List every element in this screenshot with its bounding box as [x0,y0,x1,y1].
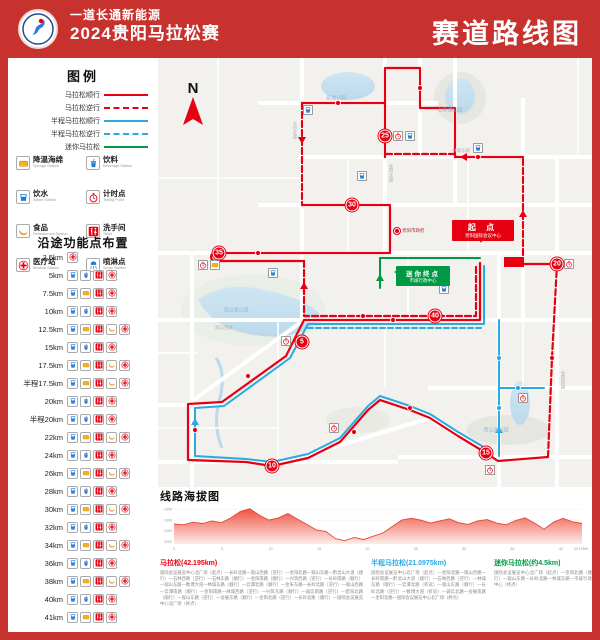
elevation-title: 线路海拔图 [160,488,592,504]
water-icon [67,414,78,425]
half-marathon-description-title: 半程马拉松(21.0975km) [371,558,486,568]
waypoint-row: 20km [8,392,158,410]
start-point-label: 起 点 贵阳国际会议中心 [452,220,514,241]
beverage-icon [80,306,91,317]
waypoint-row: 36km [8,554,158,572]
waypoint-row: 15km [8,338,158,356]
legend-route-label: 半程马拉松顺行 [51,116,100,126]
lake-label: 七彩湖公园 [437,107,462,114]
toilet-icon [93,558,104,569]
waypoint-row: 2.5km [8,248,158,266]
water-icon [67,306,78,317]
toilet-icon [93,396,104,407]
mini-finish-line1: 迷你终点 [397,268,449,278]
map-sponge-icon [210,260,220,270]
svg-text:15: 15 [317,547,321,551]
legend-route-line-sample [104,146,148,148]
svg-text:1350: 1350 [164,508,172,512]
svg-text:42.195KM: 42.195KM [574,547,588,551]
waypoint-icons [67,342,117,353]
medical-icon [119,324,130,335]
beverage-icon [80,450,91,461]
facility-name-zh: 饮水 [33,190,56,198]
waypoint-km-label: 30km [8,505,63,514]
finish-gate-marker [504,257,524,267]
compass-label: N [180,80,206,97]
medical-icon [106,396,117,407]
route-map: N 起 点 贵阳国际会议中心 迷你终点 市级行政中心 贵阳市政府 5101520… [158,58,592,487]
city-government-poi: 贵阳市政府 [394,228,425,234]
marathon-description-title: 马拉松(42.195km) [160,558,363,568]
food-icon [106,324,117,335]
half-marathon-description: 半程马拉松(21.0975km) 国际会议展览中心北广场（起点）—金阳北路—观山… [371,558,486,630]
map-water-icon [405,131,415,141]
water-icon [67,558,78,569]
toilet-icon [93,594,104,605]
waypoint-icons [67,378,130,389]
toilet-icon [93,288,104,299]
start-label-line2: 贵阳国际会议中心 [453,233,513,239]
event-logo [18,9,58,49]
poi-label: 贵阳市政府 [402,228,425,234]
food-icon [106,540,117,551]
sponsor-line: 一道长通新能源 [70,8,220,23]
legend-route-item: 马拉松逆行 [8,101,158,114]
waypoint-km-label: 36km [8,559,63,568]
svg-text:1200: 1200 [164,540,172,544]
toilet-icon [93,522,104,533]
legend-route-item: 马拉松顺行 [8,88,158,101]
map-water-icon [473,143,483,153]
waypoint-km-label: 26km [8,469,63,478]
waypoint-icons [67,522,117,533]
water-icon [67,504,78,515]
map-timing-icon [281,336,291,346]
waypoint-icons [67,612,117,623]
waypoint-icons [67,486,117,497]
water-icon [67,270,78,281]
legend-route-item: 半程马拉松逆行 [8,127,158,140]
legend-route-label: 马拉松顺行 [65,90,100,100]
waypoint-list: 2.5km5km7.5km10km12.5km15km17.5km半程17.5k… [8,248,158,626]
marathon-description-body: 国际会议展览中心北广场（起点）—长岭北路—观山西路（逆行）—金阳北路—观山东路—… [160,570,363,607]
sponge-icon [80,360,91,371]
map-timing-icon [393,131,403,141]
waypoint-row: 26km [8,464,158,482]
waypoint-icons [67,540,130,551]
elevation-section: 线路海拔图 1350130012501200051015202530354042… [160,488,592,558]
map-timing-icon [518,393,528,403]
medical-icon [106,414,117,425]
waypoint-icons [67,576,130,587]
waypoint-row: 17.5km [8,356,158,374]
svg-text:5: 5 [221,547,223,551]
water-icon [67,342,78,353]
km-marker-10: 10 [266,460,279,473]
map-water-icon [303,105,313,115]
route-map-canvas [158,58,592,487]
toilet-icon [93,432,104,443]
beverage-icon [80,396,91,407]
waypoint-row: 30km [8,500,158,518]
toilet-icon [93,414,104,425]
beverage-icon [80,522,91,533]
waypoint-icons [67,288,117,299]
medical-icon [106,270,117,281]
waypoint-row: 28km [8,482,158,500]
waypoint-row: 24km [8,446,158,464]
marathon-description: 马拉松(42.195km) 国际会议展览中心北广场（起点）—长岭北路—观山西路（… [160,558,363,630]
timing-icon [86,190,100,204]
north-compass-icon: N [180,80,206,130]
poster-content: 图例 马拉松顺行马拉松逆行半程马拉松顺行半程马拉松逆行迷你马拉松 降温海绵Spo… [8,58,592,632]
elevation-chart-svg: 1350130012501200051015202530354042.195KM [160,504,588,556]
waypoint-icons [67,504,130,515]
waypoint-icons [67,306,117,317]
waypoint-icons [67,468,130,479]
map-timing-icon [329,423,339,433]
waypoint-km-label: 15km [8,343,63,352]
waypoint-km-label: 22km [8,433,63,442]
route-descriptions: 马拉松(42.195km) 国际会议展览中心北广场（起点）—长岭北路—观山西路（… [160,558,592,630]
water-icon [67,468,78,479]
waypoint-row: 7.5km [8,284,158,302]
water-icon [67,522,78,533]
legend-title: 图例 [8,66,158,85]
beverage-icon [80,342,91,353]
waypoint-row: 34km [8,536,158,554]
sponge-icon [80,378,91,389]
sponge-icon [80,576,91,587]
waypoint-row: 40km [8,590,158,608]
food-icon [106,504,117,515]
medical-icon [106,288,117,299]
mini-finish-line2: 市级行政中心 [397,278,449,284]
map-timing-icon [564,259,574,269]
map-timing-icon [485,465,495,475]
waypoint-km-label: 34km [8,541,63,550]
waypoint-icons [67,270,117,281]
toilet-icon [93,342,104,353]
waypoint-km-label: 12.5km [8,325,63,334]
waypoint-icons [67,414,117,425]
toilet-icon [93,324,104,335]
event-logo-icon [22,13,54,45]
mini-marathon-description-title: 迷你马拉松(约4.5km) [494,558,592,568]
waypoint-icons [67,360,130,371]
road-label: 长岭北路 [292,121,298,139]
medical-icon [119,378,130,389]
waypoint-km-label: 28km [8,487,63,496]
water-icon [67,486,78,497]
start-label-line1: 起 点 [453,222,513,233]
legend-route-list: 马拉松顺行马拉松逆行半程马拉松顺行半程马拉松逆行迷你马拉松 [8,88,158,153]
waypoint-km-label: 10km [8,307,63,316]
water-icon [67,594,78,605]
svg-text:20: 20 [365,547,369,551]
elevation-chart: 1350130012501200051015202530354042.195KM [160,504,592,561]
poi-dot-icon [394,228,400,234]
waypoint-icons [67,594,117,605]
medical-icon [119,576,130,587]
medical-icon [106,594,117,605]
waypoint-row: 41km [8,608,158,626]
waypoint-km-label: 17.5km [8,361,63,370]
waypoint-km-label: 32km [8,523,63,532]
water-icon [67,360,78,371]
legend-facility-item: 饮料Beverage Station [86,156,156,190]
sponge-icon [80,468,91,479]
water-icon [67,612,78,623]
medical-icon [106,486,117,497]
legend-facility-item: 降温海绵Sponge Station [16,156,86,190]
water-icon [67,450,78,461]
svg-text:0: 0 [173,547,175,551]
waypoint-km-label: 38km [8,577,63,586]
mini-marathon-description: 迷你马拉松(约4.5km) 国际会议展览中心北广场（起点）—金阳北路（顺行）—观… [494,558,592,630]
waypoint-icons [67,324,130,335]
waypoint-km-label: 半程17.5km [8,378,63,389]
legend-route-line-sample [104,120,148,122]
legend-route-line-sample [104,94,148,96]
legend-facility-text: 降温海绵Sponge Station [33,156,63,168]
water-icon [67,576,78,587]
map-water-icon [268,268,278,278]
toilet-icon [93,504,104,515]
waypoint-row: 半程17.5km [8,374,158,392]
legend-route-label: 迷你马拉松 [65,142,100,152]
facility-name-zh: 降温海绵 [33,156,63,164]
water-icon [67,540,78,551]
toilet-icon [93,378,104,389]
page-title: 赛道路线图 [432,12,582,51]
svg-text:1300: 1300 [164,518,172,522]
km-marker-25: 25 [379,130,392,143]
water-icon [16,190,30,204]
legend-facility-text: 饮料Beverage Station [103,156,132,168]
waypoint-row: 10km [8,302,158,320]
sponge-icon [80,432,91,443]
waypoint-km-label: 20km [8,397,63,406]
sponge-icon [80,504,91,515]
poster-header: 一道长通新能源 2024贵阳马拉松赛 赛道路线图 [8,0,592,58]
facility-name-zh: 计时点 [103,190,126,198]
legend-facility-text: 计时点Timing Point [103,190,126,202]
legend-facility-text: 饮水Water Station [33,190,56,202]
legend-route-label: 半程马拉松逆行 [51,129,100,139]
sponge-icon [80,288,91,299]
waypoint-row: 半程20km [8,410,158,428]
medical-icon [119,432,130,443]
toilet-icon [93,360,104,371]
road-label: 金阳南路 [560,371,566,389]
svg-text:30: 30 [462,547,466,551]
medical-icon [106,450,117,461]
toilet-icon [93,486,104,497]
lake-label: 泉湖公园 [326,95,346,102]
water-icon [67,378,78,389]
beverage-icon [86,156,100,170]
medical-icon [67,252,78,263]
medical-icon [106,612,117,623]
medical-icon [119,468,130,479]
waypoint-km-label: 7.5km [8,289,63,298]
beverage-icon [80,558,91,569]
waypoint-km-label: 半程20km [8,414,63,425]
medical-icon [119,540,130,551]
svg-text:1250: 1250 [164,529,172,533]
food-icon [106,378,117,389]
water-icon [67,432,78,443]
lake-label: 阅山湖公园 [483,427,508,434]
waypoint-row: 12.5km [8,320,158,338]
legend-route-label: 马拉松逆行 [65,103,100,113]
svg-text:25: 25 [414,547,418,551]
km-marker-40: 40 [429,310,442,323]
road-label: 观山西路 [215,325,233,331]
medical-icon [119,360,130,371]
legend-facility-item: 计时点Timing Point [86,190,156,224]
toilet-icon [93,306,104,317]
waypoint-icons [67,396,117,407]
waypoint-row: 38km [8,572,158,590]
facility-name-en: Sponge Station [33,164,63,168]
sponge-icon [80,324,91,335]
medical-icon [106,558,117,569]
beverage-icon [80,270,91,281]
map-timing-icon [198,260,208,270]
water-icon [67,324,78,335]
legend-route-item: 迷你马拉松 [8,140,158,153]
beverage-icon [80,486,91,497]
half-marathon-description-body: 国际会议展览中心北广场（起点）—金阳北路—观山西路—长岭南路—黔灵山大道（顺行）… [371,570,486,601]
facility-name-zh: 洗手间 [103,224,126,232]
waypoint-km-label: 2.5km [8,253,63,262]
road-label: 金阳北路 [388,164,394,182]
waypoint-row: 5km [8,266,158,284]
title-block: 一道长通新能源 2024贵阳马拉松赛 [70,8,220,44]
km-marker-30: 30 [346,199,359,212]
mini-finish-label: 迷你终点 市级行政中心 [396,266,450,286]
toilet-icon [93,468,104,479]
lake-label: 观山湖公园 [223,307,248,314]
water-icon [67,288,78,299]
waypoint-km-label: 41km [8,613,63,622]
legend-sidebar: 图例 马拉松顺行马拉松逆行半程马拉松顺行半程马拉松逆行迷你马拉松 降温海绵Spo… [8,58,158,632]
waypoint-km-label: 24km [8,451,63,460]
km-marker-5: 5 [296,336,309,349]
km-marker-20: 20 [551,258,564,271]
map-water-icon [357,171,367,181]
svg-text:40: 40 [559,547,563,551]
km-marker-15: 15 [480,447,493,460]
waypoint-icons [67,450,117,461]
sponge-icon [16,156,30,170]
medical-icon [106,342,117,353]
facility-name-en: Water Station [33,198,56,202]
beverage-icon [80,414,91,425]
facility-name-en: Beverage Station [103,164,132,168]
toilet-icon [93,612,104,623]
legend-route-item: 半程马拉松顺行 [8,114,158,127]
marathon-route-poster: 一道长通新能源 2024贵阳马拉松赛 赛道路线图 图例 马拉松顺行马拉松逆行半程… [0,0,600,640]
mini-marathon-description-body: 国际会议展览中心北广场（起点）—金阳北路（顺行）—观山东路—长岭北路—林城东路—… [494,570,592,589]
medical-icon [119,504,130,515]
toilet-icon [93,540,104,551]
medical-icon [106,306,117,317]
facility-name-en: Timing Point [103,198,126,202]
km-marker-35: 35 [213,247,226,260]
sponge-icon [80,612,91,623]
waypoint-icons [67,432,130,443]
road-label: 林城东路 [452,148,470,154]
toilet-icon [93,270,104,281]
waypoint-icons [67,558,117,569]
toilet-icon [93,450,104,461]
legend-facility-item: 饮水Water Station [16,190,86,224]
waypoint-row: 32km [8,518,158,536]
waypoint-row: 22km [8,428,158,446]
legend-route-line-sample [104,133,148,135]
waypoint-km-label: 5km [8,271,63,280]
beverage-icon [80,594,91,605]
food-icon [106,432,117,443]
toilet-icon [93,576,104,587]
facility-name-zh: 食品 [33,224,68,232]
svg-text:35: 35 [510,547,514,551]
event-title: 2024贵阳马拉松赛 [70,23,220,44]
sponge-icon [80,540,91,551]
legend-route-line-sample [104,107,148,109]
medical-icon [106,522,117,533]
svg-text:10: 10 [269,547,273,551]
food-icon [106,576,117,587]
food-icon [106,468,117,479]
waypoint-icons [67,252,78,263]
waypoint-km-label: 40km [8,595,63,604]
water-icon [67,396,78,407]
food-icon [106,360,117,371]
facility-name-zh: 饮料 [103,156,132,164]
